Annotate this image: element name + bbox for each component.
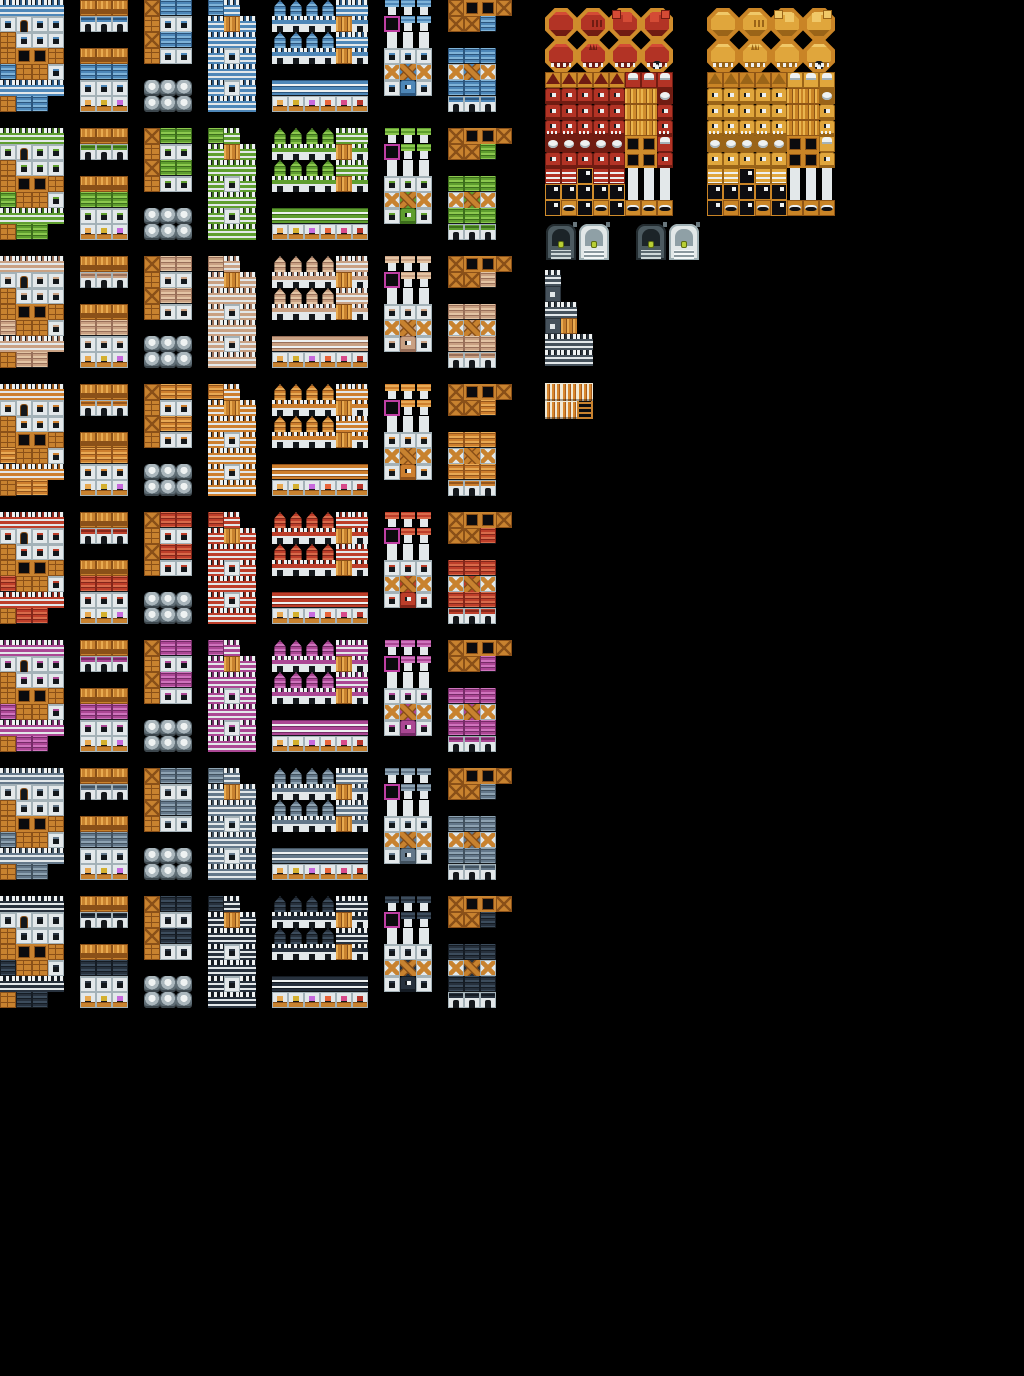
- tile-roof-spire: [288, 32, 304, 48]
- tile-awning: [288, 80, 304, 96]
- tile-empty: [176, 192, 192, 208]
- tile-shop-front: [96, 352, 112, 368]
- tile-gold-teeth: [787, 200, 803, 216]
- tile-battlement-wall: [48, 640, 64, 656]
- tile-stone-pot: [176, 720, 192, 736]
- tile-empty: [496, 688, 512, 704]
- group-slate-roof-shop-column: [80, 768, 128, 880]
- tile-battlement-wall: [224, 384, 240, 400]
- tile-roof: [448, 208, 464, 224]
- tile-crate: [448, 16, 464, 32]
- tile-empty: [288, 64, 304, 80]
- tile-castle-base: [304, 176, 320, 192]
- tile-shop-front: [352, 224, 368, 240]
- tile-battlement-wall: [32, 896, 48, 912]
- tile-pedestal: [819, 184, 835, 200]
- tile-creature-face: [593, 152, 609, 168]
- tile-wall-window: [32, 288, 48, 304]
- tile-shop-front: [80, 224, 96, 240]
- tile-house-front: [112, 144, 128, 160]
- tile-wall-window: [160, 944, 176, 960]
- tile-shop-front: [112, 736, 128, 752]
- tile-house-front: [112, 400, 128, 416]
- tile-empty: [593, 286, 609, 302]
- tile-battlement-wall: [208, 832, 224, 848]
- tile-wall-window: [0, 144, 16, 160]
- tile-wall-window: [112, 848, 128, 864]
- tile-shop-front: [80, 864, 96, 880]
- tile-house-front: [464, 224, 480, 240]
- tile-wall-window: [400, 304, 416, 320]
- tile-battlement-wall: [224, 128, 240, 144]
- tile-empty: [160, 576, 176, 592]
- tile-shop-front: [288, 224, 304, 240]
- tile-roof-spire: [320, 288, 336, 304]
- tile-stone-pot: [160, 352, 176, 368]
- gate-steps: [641, 250, 661, 259]
- tile-empty: [320, 960, 336, 976]
- tile-castle-base: [352, 272, 368, 288]
- tile-roof: [160, 768, 176, 784]
- tile-castle-base: [288, 944, 304, 960]
- tile-stone-pot: [144, 848, 160, 864]
- tile-wall-window: [224, 432, 240, 448]
- group-green-house-block: [0, 128, 64, 240]
- tile-wall-window: [48, 544, 64, 560]
- tile-pointed-cap: [545, 72, 561, 88]
- tile-roof: [80, 960, 96, 976]
- tile-wall-window: [16, 800, 32, 816]
- tile-empty: [593, 334, 609, 350]
- tile-empty: [320, 448, 336, 464]
- tile-roof: [464, 560, 480, 576]
- tile-battlement-wall: [336, 544, 352, 560]
- tile-wall-window: [112, 336, 128, 352]
- tile-roof: [0, 960, 16, 976]
- tile-house-front: [96, 16, 112, 32]
- tile-crate: [144, 800, 160, 816]
- tile-battlement-wall: [48, 976, 64, 992]
- tile-wood-panel: [48, 560, 64, 576]
- tile-empty: [496, 672, 512, 688]
- tile-small-cap: [416, 0, 432, 16]
- tile-wall-window: [384, 560, 400, 576]
- tile-empty: [176, 576, 192, 592]
- tile-castle-base: [320, 16, 336, 32]
- tile-wall-window: [0, 16, 16, 32]
- tile-battlement-wall: [352, 128, 368, 144]
- tile-awning: [272, 464, 288, 480]
- tile-empty: [336, 64, 352, 80]
- tile-crate: [464, 528, 480, 544]
- tile-awning: [336, 976, 352, 992]
- tile-battlement-wall: [0, 640, 16, 656]
- tile-roof: [16, 992, 32, 1008]
- tile-empty: [464, 800, 480, 816]
- tile-wood-panel: [16, 192, 32, 208]
- tile-pedestal: [400, 544, 416, 560]
- tile-castle-base: [288, 560, 304, 576]
- tile-roof: [160, 800, 176, 816]
- tile-empty: [176, 960, 192, 976]
- tile-battlement-wall: [0, 720, 16, 736]
- tile-empty: [80, 160, 96, 176]
- tile-dark-sign: [545, 200, 561, 216]
- tile-dark-sign: [739, 200, 755, 216]
- tile-empty: [352, 320, 368, 336]
- tile-cross-braced-wall: [480, 960, 496, 976]
- tile-empty: [304, 64, 320, 80]
- tile-empty: [480, 160, 496, 176]
- tile-house-front: [112, 656, 128, 672]
- tile-wood-frame: [32, 176, 48, 192]
- tile-ornate-wood-eave: [96, 384, 112, 400]
- tile-empty: [561, 286, 577, 302]
- tile-wood-planks: [336, 272, 352, 288]
- group-green-storehouse-column: [144, 128, 192, 240]
- tile-cross-braced-wall-large: [400, 704, 416, 720]
- tile-battlement-wall: [208, 96, 224, 112]
- boss-dome-horned-skull: [803, 40, 835, 72]
- tile-empty: [288, 704, 304, 720]
- tile-eye-pod: [561, 136, 577, 152]
- tile-stone-pot: [144, 736, 160, 752]
- gate-key: [558, 241, 564, 248]
- tile-shop-front: [288, 480, 304, 496]
- tile-cross-braced-wall-large: [400, 576, 416, 592]
- tile-wall-window: [160, 688, 176, 704]
- tile-empty: [593, 318, 609, 334]
- tile-creature-face: [755, 152, 771, 168]
- tile-pedestal: [803, 184, 819, 200]
- group-blue-wall-column: [208, 0, 256, 112]
- tile-wall-window: [224, 48, 240, 64]
- tile-house-front: [96, 784, 112, 800]
- tile-castle-base: [352, 432, 368, 448]
- tile-crate: [144, 160, 160, 176]
- tile-roof-spire: [320, 160, 336, 176]
- group-midnight-castle-and-shops: [272, 896, 368, 1008]
- tile-creature-face: [609, 152, 625, 168]
- tile-shop-front: [320, 224, 336, 240]
- tile-battlement-wall: [16, 336, 32, 352]
- tile-battlement-wall: [240, 912, 256, 928]
- boss-dome-footed: [545, 40, 577, 72]
- tile-creature-face: [609, 104, 625, 120]
- tile-wood-panel: [32, 320, 48, 336]
- tile-ornate-wood-eave: [80, 304, 96, 320]
- tile-wall-window: [16, 32, 32, 48]
- tile-roof-spire: [304, 768, 320, 784]
- tile-battlement-wall: [240, 944, 256, 960]
- tile-wood-panel: [48, 432, 64, 448]
- tile-wood-panel: [144, 176, 160, 192]
- tile-roof-spire: [288, 512, 304, 528]
- tile-roof: [32, 608, 48, 624]
- tile-wood-panel: [16, 704, 32, 720]
- tile-stone-pot: [176, 976, 192, 992]
- tile-empty: [448, 928, 464, 944]
- tile-cross-braced-wall: [384, 448, 400, 464]
- tile-empty: [144, 192, 160, 208]
- tile-wood-planks: [336, 304, 352, 320]
- group-midnight-storehouse-column: [144, 896, 192, 1008]
- tile-shop-front: [304, 992, 320, 1008]
- tile-wood-panel: [0, 288, 16, 304]
- tile-cross-braced-wall: [384, 192, 400, 208]
- tile-roof: [96, 320, 112, 336]
- tile-roof: [480, 784, 496, 800]
- tile-wood-panel: [144, 688, 160, 704]
- tile-battlement-wall: [0, 208, 16, 224]
- tile-vertical-stripes: [561, 383, 577, 401]
- tile-empty: [160, 704, 176, 720]
- tile-battlement-wall: [208, 352, 224, 368]
- tile-pedestal: [384, 672, 400, 688]
- tile-battlement-wall: [336, 928, 352, 944]
- tile-small-cap: [384, 0, 400, 16]
- tile-empty: [496, 304, 512, 320]
- tile-wood-frame: [480, 128, 496, 144]
- tile-creature-face: [400, 80, 416, 96]
- tile-wood-planks: [336, 560, 352, 576]
- tile-house-front: [96, 528, 112, 544]
- tile-battlement-wall: [336, 672, 352, 688]
- tile-wall-window: [160, 176, 176, 192]
- tile-wall-window: [112, 592, 128, 608]
- tile-wood-frame: [464, 384, 480, 400]
- tile-wall-window: [224, 304, 240, 320]
- tile-roof: [112, 448, 128, 464]
- tile-wall-window: [416, 48, 432, 64]
- tile-roof-spire: [304, 288, 320, 304]
- tile-battlement-wall: [240, 592, 256, 608]
- tile-wall-window: [416, 304, 432, 320]
- tile-house-front: [112, 784, 128, 800]
- tile-shop-front: [80, 608, 96, 624]
- tile-roof-spire: [272, 640, 288, 656]
- tile-battlement-wall: [0, 896, 16, 912]
- tile-empty: [496, 96, 512, 112]
- tile-wood-frame: [480, 0, 496, 16]
- tile-cross-braced-wall-large: [400, 192, 416, 208]
- tile-empty: [144, 448, 160, 464]
- tile-roof-spire: [320, 768, 336, 784]
- tile-house-front: [480, 736, 496, 752]
- tile-wood-planks: [625, 88, 641, 104]
- tile-castle-base: [288, 48, 304, 64]
- group-purple-wall-column: [208, 640, 256, 752]
- group-orange-wall-column: [208, 384, 256, 496]
- tile-wall-window: [80, 464, 96, 480]
- tile-roof: [112, 64, 128, 80]
- tile-empty: [496, 464, 512, 480]
- tile-battlement-wall: [352, 640, 368, 656]
- tile-wood-frame: [480, 384, 496, 400]
- tile-castle-base: [352, 400, 368, 416]
- tile-empty: [496, 528, 512, 544]
- tile-wood-panel: [144, 528, 160, 544]
- tile-empty: [352, 960, 368, 976]
- tile-battlement-wall: [545, 334, 561, 350]
- tile-battlement-wall: [208, 336, 224, 352]
- tile-dark-sign: [707, 184, 723, 200]
- tile-battlement-wall: [224, 352, 240, 368]
- tile-castle-base: [288, 432, 304, 448]
- tile-wall-window: [160, 144, 176, 160]
- tile-stone-pot: [176, 208, 192, 224]
- tile-wall-window: [416, 944, 432, 960]
- tile-gold-teeth: [593, 200, 609, 216]
- tile-wall-window: [48, 528, 64, 544]
- tile-cross-braced-wall: [480, 192, 496, 208]
- tile-roof-spire: [288, 384, 304, 400]
- tile-crate: [144, 896, 160, 912]
- tile-crate: [144, 928, 160, 944]
- tile-roof: [32, 224, 48, 240]
- tile-cross-braced-wall-large: [400, 448, 416, 464]
- tile-shop-front: [304, 96, 320, 112]
- tile-cross-braced-wall-large: [400, 64, 416, 80]
- tile-wood-panel: [16, 448, 32, 464]
- tile-battlement-wall: [240, 480, 256, 496]
- tile-crate: [144, 32, 160, 48]
- tile-castle-base: [288, 400, 304, 416]
- tile-empty: [144, 832, 160, 848]
- tile-wood-panel: [16, 832, 32, 848]
- tile-roof-spire: [272, 768, 288, 784]
- tile-wood-panel: [0, 672, 16, 688]
- tile-wood-frame: [464, 512, 480, 528]
- tile-roof: [16, 480, 32, 496]
- tile-cross-braced-wall: [480, 320, 496, 336]
- tile-wood-panel: [32, 448, 48, 464]
- tile-battlement-wall: [32, 384, 48, 400]
- tile-empty: [496, 32, 512, 48]
- tile-battlement-wall: [208, 528, 224, 544]
- tile-roof: [176, 928, 192, 944]
- tile-battlement-wall: [48, 128, 64, 144]
- tile-wall-window: [176, 432, 192, 448]
- tile-wood-panel: [32, 704, 48, 720]
- tile-wall-door: [16, 784, 32, 800]
- tile-empty: [496, 80, 512, 96]
- gate-steps: [674, 250, 694, 259]
- group-midnight-roof-shop-column: [80, 896, 128, 1008]
- tile-creature-face-teeth: [723, 120, 739, 136]
- tile-roof: [96, 192, 112, 208]
- tile-wood-panel: [144, 144, 160, 160]
- tile-awning: [288, 336, 304, 352]
- tile-cross-braced-wall: [448, 832, 464, 848]
- tile-shop-front: [80, 480, 96, 496]
- tile-roof-spire: [304, 640, 320, 656]
- tile-awning: [352, 848, 368, 864]
- tile-roof-spire: [288, 672, 304, 688]
- group-slate-castle-and-shops: [272, 768, 368, 880]
- tile-wood-panel: [0, 928, 16, 944]
- tile-empty: [272, 448, 288, 464]
- tile-awning: [352, 208, 368, 224]
- tile-shop-front: [96, 480, 112, 496]
- tile-battlement-wall: [240, 80, 256, 96]
- tile-striped-banner: [723, 168, 739, 184]
- tile-creature-face: [400, 336, 416, 352]
- tile-wood-panel: [0, 944, 16, 960]
- tile-awning: [304, 592, 320, 608]
- tile-battlement-wall: [16, 768, 32, 784]
- tile-pointed-cap: [707, 72, 723, 88]
- tile-empty: [96, 288, 112, 304]
- tile-wood-panel: [144, 816, 160, 832]
- tile-house-front: [448, 480, 464, 496]
- tile-house-front: [80, 144, 96, 160]
- tile-wall-window: [32, 928, 48, 944]
- tile-cross-braced-wall-large: [400, 960, 416, 976]
- tile-battlement-wall: [352, 928, 368, 944]
- tile-awning: [320, 336, 336, 352]
- group-purple-crates-and-roofs: [448, 640, 512, 752]
- tile-roof: [448, 80, 464, 96]
- tile-small-cap: [416, 784, 432, 800]
- tile-empty: [112, 416, 128, 432]
- group-purple-storehouse-column: [144, 640, 192, 752]
- group-orange-house-block: [0, 384, 64, 496]
- tile-pointed-cap: [755, 72, 771, 88]
- tile-battlement-wall: [240, 144, 256, 160]
- group-tan-roof-shop-column: [80, 256, 128, 368]
- tile-roof: [160, 896, 176, 912]
- tile-roof: [96, 704, 112, 720]
- tile-roof-spire: [320, 416, 336, 432]
- tile-wall-window: [176, 784, 192, 800]
- tile-roof: [448, 848, 464, 864]
- tile-ornate-wood-eave: [96, 640, 112, 656]
- tile-castle-base: [352, 944, 368, 960]
- tile-creature-face: [723, 88, 739, 104]
- tile-small-cap: [400, 384, 416, 400]
- tile-eye-pod: [819, 88, 835, 104]
- tile-stone-pot: [160, 848, 176, 864]
- tile-battlement-wall: [32, 80, 48, 96]
- tile-stone-pot: [160, 80, 176, 96]
- tile-castle-base: [320, 304, 336, 320]
- tile-battlement-wall: [0, 848, 16, 864]
- tile-castle-base: [288, 144, 304, 160]
- tile-cross-braced-wall-large: [464, 448, 480, 464]
- tile-crate: [448, 384, 464, 400]
- tile-shop-front: [336, 352, 352, 368]
- tile-dark-sign: [739, 184, 755, 200]
- tile-battlement-wall: [208, 656, 224, 672]
- tile-empty: [496, 960, 512, 976]
- tile-roof: [80, 832, 96, 848]
- tile-empty: [480, 800, 496, 816]
- tile-pointed-cap: [739, 72, 755, 88]
- tile-crate: [448, 768, 464, 784]
- tile-battlement-wall: [240, 448, 256, 464]
- tile-roof: [176, 800, 192, 816]
- tile-small-cap: [416, 512, 432, 528]
- group-tan-house-block: [0, 256, 64, 368]
- tile-stone-pot: [160, 208, 176, 224]
- tile-creature-face: [545, 104, 561, 120]
- tile-stone-pot: [176, 336, 192, 352]
- tile-empty: [272, 320, 288, 336]
- tile-battlement-wall: [208, 304, 224, 320]
- tile-castle-base: [352, 816, 368, 832]
- tile-empty: [112, 800, 128, 816]
